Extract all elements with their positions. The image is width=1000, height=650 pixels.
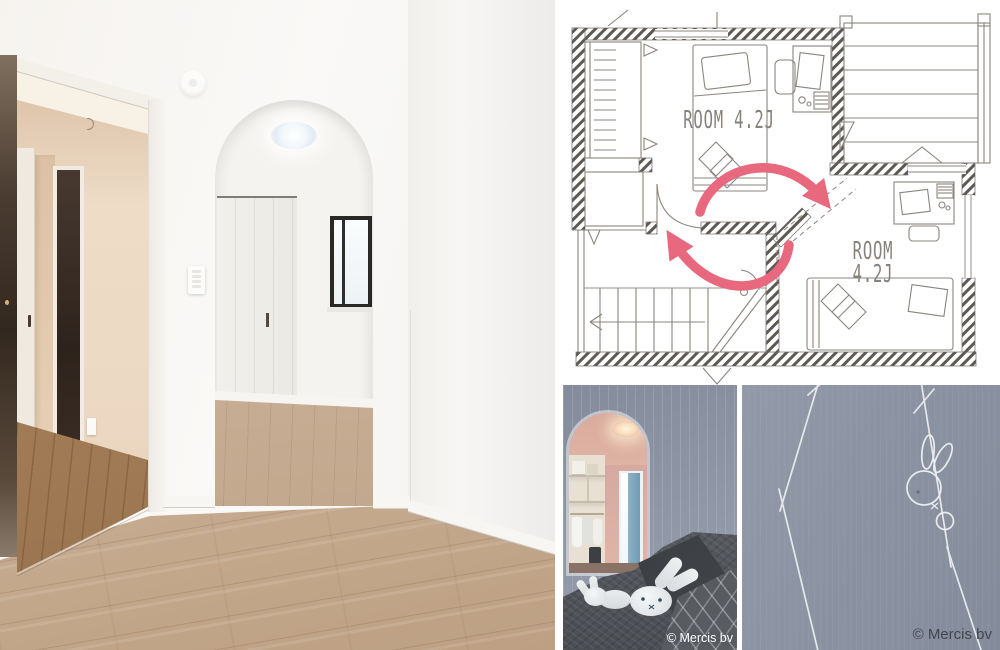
room-label-top: ROOM 4.2J [683, 105, 775, 134]
blue-door [628, 473, 640, 571]
floor-plan-drawing: ROOM 4.2J ROOM 4.2J [560, 0, 1000, 385]
hanging-clothes [572, 517, 582, 547]
floor-plan: ROOM 4.2J ROOM 4.2J [560, 0, 1000, 385]
room-photo [0, 0, 555, 650]
closet-back-door [619, 471, 643, 573]
closet-light [613, 421, 639, 437]
threshold-line [0, 0, 555, 650]
miffy-face [630, 586, 672, 616]
copyright-text: © Mercis bv [667, 631, 733, 645]
storage-box [572, 461, 585, 474]
hanger-rod [570, 513, 604, 515]
room-label-right-2: 4.2J [853, 259, 894, 288]
bedroom-photo: © Mercis bv [563, 385, 737, 650]
wallpaper-photo: © Mercis bv [742, 385, 1000, 650]
closet-shelves [569, 455, 605, 573]
plan-linework [572, 10, 990, 384]
storage-box [587, 464, 598, 474]
hanging-clothes [583, 517, 592, 545]
photo-collage: ROOM 4.2J ROOM 4.2J [0, 0, 1000, 650]
plan-walls [572, 28, 976, 366]
closet-arch [569, 413, 647, 573]
wallpaper-pattern [742, 385, 1000, 650]
hanging-clothes [593, 519, 602, 545]
copyright-text: © Mercis bv [913, 626, 992, 643]
